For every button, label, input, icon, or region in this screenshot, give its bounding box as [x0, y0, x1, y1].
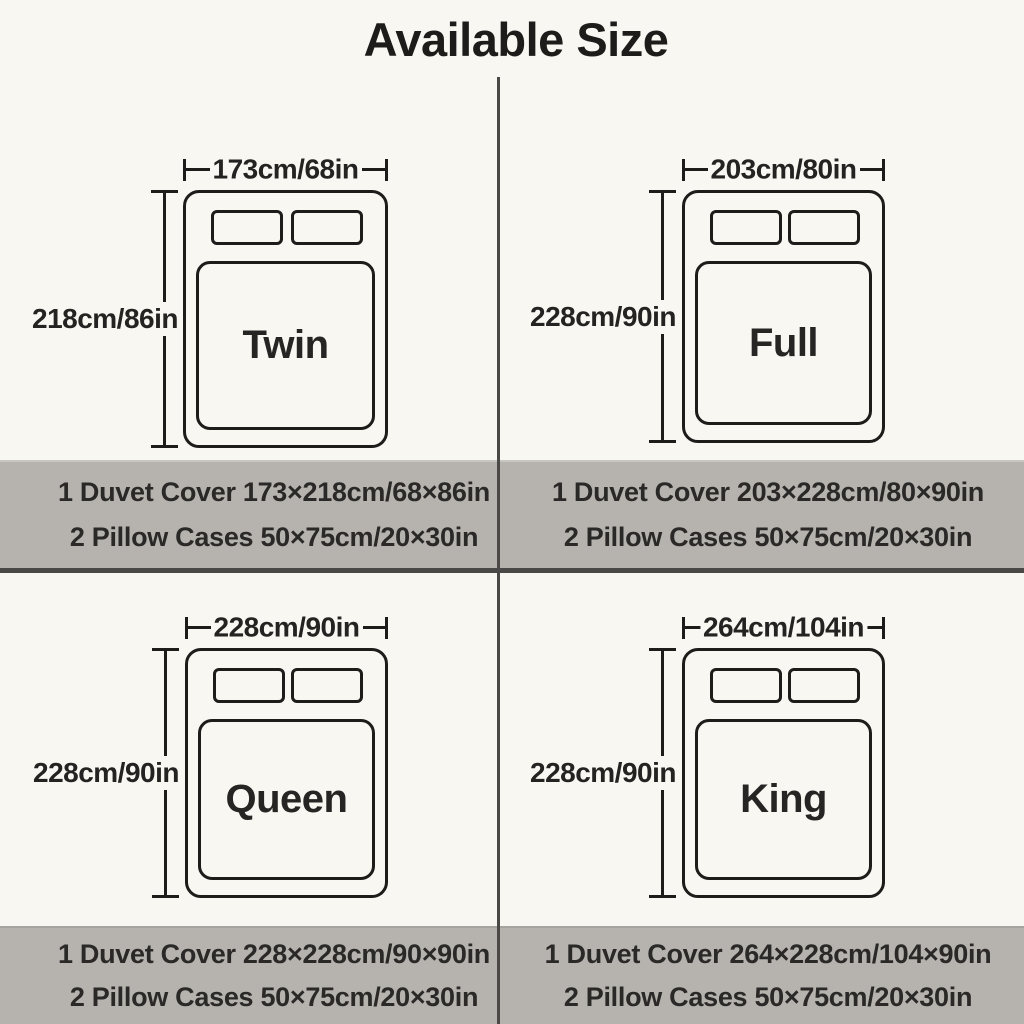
- duvet-spec-text: 1 Duvet Cover 173×218cm/68×86in: [58, 477, 490, 508]
- dimension-tick: [682, 617, 685, 639]
- dimension-tick: [649, 648, 676, 651]
- height-dimension-label: 228cm/90in: [516, 300, 676, 334]
- height-dimension-label: 218cm/86in: [18, 302, 178, 336]
- spec-banner-bottom: 1 Duvet Cover 228×228cm/90×90in 2 Pillow…: [0, 926, 1024, 1024]
- pillow-right: [291, 210, 363, 245]
- size-chart-image: Available Size 173cm/68in 218cm/86in Twi…: [0, 0, 1024, 1024]
- horizontal-divider: [0, 568, 1024, 573]
- size-name-label: King: [740, 777, 827, 822]
- duvet-spec-text: 1 Duvet Cover 264×228cm/104×90in: [545, 939, 992, 970]
- pillow-left: [710, 210, 782, 245]
- dimension-tick: [152, 895, 179, 898]
- dimension-tick: [183, 159, 186, 181]
- dimension-tick: [649, 440, 676, 443]
- dimension-tick: [649, 190, 676, 193]
- pillow-left: [710, 668, 782, 703]
- bed-outline: Full: [682, 190, 885, 443]
- pillow-spec-text: 2 Pillow Cases 50×75cm/20×30in: [70, 522, 478, 553]
- pillow-left: [211, 210, 283, 245]
- dimension-tick: [152, 648, 179, 651]
- spec-banner-top: 1 Duvet Cover 173×218cm/68×86in 2 Pillow…: [0, 460, 1024, 568]
- pillow-right: [788, 668, 860, 703]
- width-dimension-label: 203cm/80in: [708, 154, 860, 185]
- width-dimension-line: 173cm/68in: [183, 168, 388, 171]
- dimension-tick: [882, 159, 885, 181]
- page-title: Available Size: [0, 12, 1024, 67]
- width-dimension-label: 173cm/68in: [210, 154, 362, 185]
- dimension-tick: [151, 190, 178, 193]
- size-name-label: Twin: [242, 323, 328, 368]
- duvet-spec-text: 1 Duvet Cover 203×228cm/80×90in: [552, 477, 984, 508]
- height-dimension-label: 228cm/90in: [516, 756, 676, 790]
- width-dimension-label: 264cm/104in: [700, 612, 867, 643]
- dimension-tick: [682, 159, 685, 181]
- twin-spec-cell: 1 Duvet Cover 173×218cm/68×86in 2 Pillow…: [0, 462, 512, 568]
- height-dimension-label: 228cm/90in: [19, 756, 179, 790]
- dimension-tick: [185, 617, 188, 639]
- mattress: Full: [695, 261, 872, 425]
- duvet-spec-text: 1 Duvet Cover 228×228cm/90×90in: [58, 939, 490, 970]
- size-name-label: Queen: [226, 777, 348, 822]
- pillow-spec-text: 2 Pillow Cases 50×75cm/20×30in: [564, 982, 972, 1013]
- pillow-left: [213, 668, 285, 703]
- dimension-tick: [882, 617, 885, 639]
- king-spec-cell: 1 Duvet Cover 264×228cm/104×90in 2 Pillo…: [512, 928, 1024, 1024]
- bed-outline: King: [682, 648, 885, 898]
- dimension-tick: [385, 159, 388, 181]
- bed-outline: Queen: [185, 648, 388, 898]
- mattress: Queen: [198, 719, 375, 880]
- dimension-tick: [385, 617, 388, 639]
- size-name-label: Full: [749, 321, 818, 366]
- pillow-right: [291, 668, 363, 703]
- dimension-tick: [649, 895, 676, 898]
- queen-spec-cell: 1 Duvet Cover 228×228cm/90×90in 2 Pillow…: [0, 928, 512, 1024]
- vertical-divider: [497, 77, 500, 1024]
- mattress: King: [695, 719, 872, 880]
- pillow-spec-text: 2 Pillow Cases 50×75cm/20×30in: [70, 982, 478, 1013]
- pillow-spec-text: 2 Pillow Cases 50×75cm/20×30in: [564, 522, 972, 553]
- dimension-tick: [151, 445, 178, 448]
- bed-outline: Twin: [183, 190, 388, 448]
- pillow-right: [788, 210, 860, 245]
- width-dimension-line: 228cm/90in: [185, 626, 388, 629]
- full-spec-cell: 1 Duvet Cover 203×228cm/80×90in 2 Pillow…: [512, 462, 1024, 568]
- width-dimension-line: 203cm/80in: [682, 168, 885, 171]
- width-dimension-line: 264cm/104in: [682, 626, 885, 629]
- mattress: Twin: [196, 261, 375, 430]
- width-dimension-label: 228cm/90in: [211, 612, 363, 643]
